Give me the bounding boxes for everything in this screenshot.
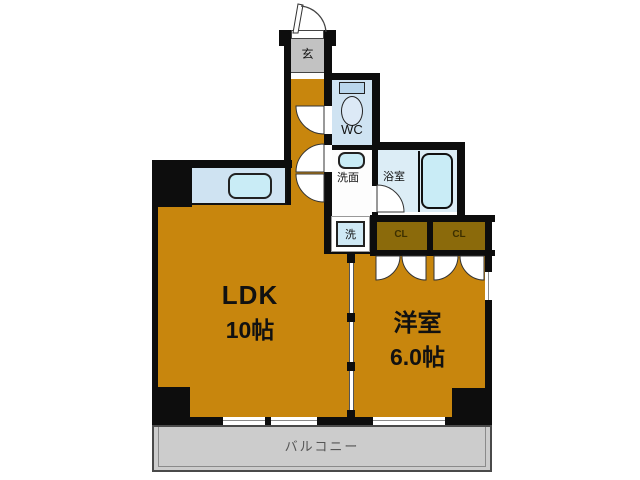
closet1-door-swing — [376, 256, 400, 280]
toilet-tank-icon — [339, 82, 365, 94]
wc-label: WC — [332, 123, 372, 137]
door-swing-layer — [0, 0, 640, 480]
closet2-label: CL — [433, 229, 485, 240]
closet2-door-swing — [460, 256, 484, 280]
floorplan: バルコニー — [0, 0, 640, 480]
kitchen-sink-icon — [228, 173, 272, 199]
wc-door-swing — [296, 106, 324, 134]
washer-icon: 洗 — [336, 221, 365, 247]
ldk-size: 10帖 — [175, 311, 325, 345]
closet1-label: CL — [375, 229, 427, 240]
entrance-door-leaf — [293, 4, 303, 33]
ldk-name: LDK — [175, 280, 325, 311]
western-room-label: 洋室 6.0帖 — [355, 303, 480, 372]
bathroom-label: 浴室 — [374, 171, 414, 183]
bathtub-icon — [421, 153, 453, 209]
entrance-door-swing — [301, 6, 326, 32]
bathroom-door-swing — [377, 185, 404, 212]
western-room-name: 洋室 — [355, 303, 480, 338]
washroom-door-swing — [296, 144, 324, 172]
washroom-label: 洗面 — [326, 172, 370, 184]
ldk-label: LDK 10帖 — [175, 280, 325, 345]
closet2-door-swing — [434, 256, 458, 280]
western-room-size: 6.0帖 — [355, 338, 480, 372]
closet1-door-swing — [402, 256, 426, 280]
washbasin-icon — [338, 152, 365, 169]
ldk-door-swing — [296, 174, 324, 202]
washer-space-frame: 洗 — [331, 216, 370, 252]
genkan-label: 玄 — [291, 48, 324, 61]
